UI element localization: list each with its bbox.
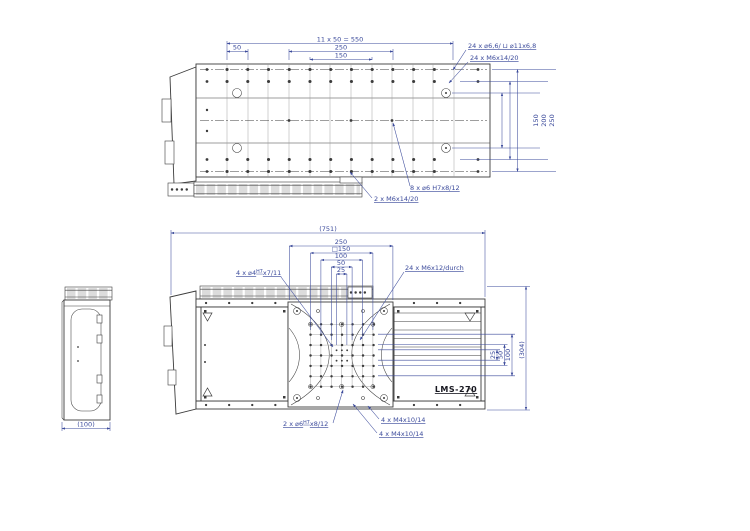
side-view: (100) <box>62 287 112 431</box>
annotation-fit-holes-4: 4 x ⌀4H7x7/11 <box>236 269 281 277</box>
annotation-m4-threads-b: 4 x M4x10/14 <box>379 430 423 438</box>
fit4-suffix: x7/11 <box>263 269 281 277</box>
fit2-sup: H7 <box>303 420 310 426</box>
left-plate <box>201 307 288 401</box>
annotation-fit-holes-2: 2 x ⌀6H7x8/12 <box>283 420 328 428</box>
dim-hole-pitch: 11 x 50 = 550 <box>317 36 364 44</box>
plan-view: (751) 250 □150 100 50 25 25 50 100 (304)… <box>164 225 530 438</box>
dim-right-200: 200 <box>540 114 548 126</box>
dim-right-100: 100 <box>504 349 512 361</box>
dim-overall-width: (304) <box>518 341 526 358</box>
technical-drawing: 11 x 50 = 550 250 50 150 150 200 250 24 … <box>0 0 750 531</box>
motor-block-plan <box>164 291 196 414</box>
annotation-through-threads-24: 24 x M6x12/durch <box>405 264 464 272</box>
cable-chain-side-view <box>65 287 112 300</box>
top-view: 11 x 50 = 550 250 50 150 150 200 250 24 … <box>162 36 556 204</box>
dim-50-top: 50 <box>233 44 241 52</box>
annotation-counterbore-holes: 24 x ⌀6,6/ ⊔ ⌀11x6,8 <box>468 42 536 50</box>
annotation-thread-holes-2: 2 x M6x14/20 <box>374 195 418 203</box>
drawing-canvas: 11 x 50 = 550 250 50 150 150 200 250 24 … <box>0 0 750 531</box>
annotation-dowel-holes-8: 8 x ⌀6 H7x8/12 <box>410 184 460 192</box>
fit2-prefix: 2 x ⌀6 <box>283 420 303 428</box>
fit4-prefix: 4 x ⌀4 <box>236 269 256 277</box>
dim-right-250: 250 <box>548 114 556 126</box>
annotation-m4-threads-a: 4 x M4x10/14 <box>381 416 425 424</box>
carriage <box>288 302 393 407</box>
dim-overall-length: (751) <box>319 225 336 233</box>
dim-side-width: (100) <box>77 421 94 429</box>
cable-chain-top-view <box>168 177 362 197</box>
dim-150-top: 150 <box>335 52 347 60</box>
dim-right-150: 150 <box>532 114 540 126</box>
dim-carriage-25: 25 <box>337 266 345 274</box>
product-label: LMS-270 <box>435 385 477 394</box>
annotation-thread-holes-24: 24 x M6x14/20 <box>470 54 519 62</box>
motor-block <box>162 67 196 184</box>
fit2-suffix: x8/12 <box>310 420 328 428</box>
dim-250-top: 250 <box>335 44 347 52</box>
fit4-sup: H7 <box>256 269 263 275</box>
